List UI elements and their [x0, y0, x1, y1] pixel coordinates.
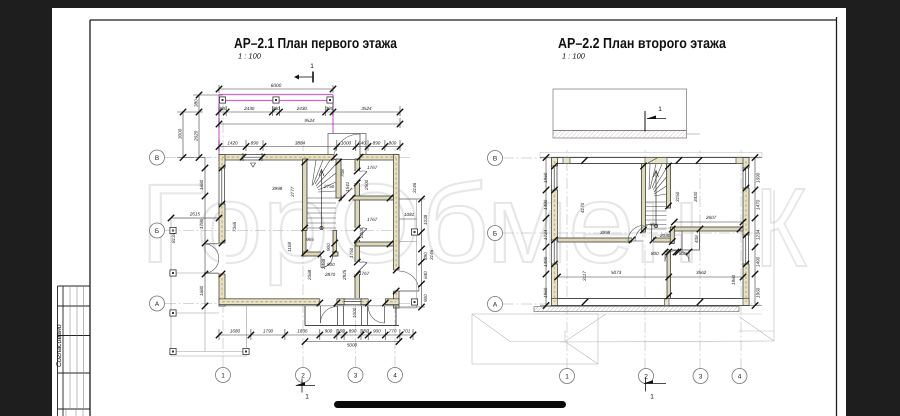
svg-text:1790: 1790	[199, 218, 204, 229]
svg-text:АР–2.2 План второго этажа: АР–2.2 План второго этажа	[558, 36, 727, 52]
svg-text:1836: 1836	[297, 329, 308, 334]
svg-text:1750: 1750	[349, 247, 354, 258]
svg-text:900: 900	[373, 329, 381, 334]
svg-text:890: 890	[251, 141, 259, 146]
svg-text:3117: 3117	[582, 271, 587, 281]
svg-text:2607: 2607	[705, 215, 717, 220]
svg-text:1000: 1000	[352, 307, 357, 318]
svg-text:3998: 3998	[272, 186, 283, 191]
svg-text:640: 640	[423, 271, 428, 279]
svg-text:В: В	[493, 156, 497, 163]
svg-text:1960: 1960	[543, 172, 548, 183]
svg-text:1420: 1420	[227, 141, 238, 146]
svg-text:1490: 1490	[543, 199, 548, 210]
svg-text:3524: 3524	[361, 106, 372, 111]
svg-text:1038: 1038	[423, 214, 428, 225]
svg-text:380: 380	[272, 106, 280, 111]
svg-text:900: 900	[326, 243, 331, 251]
svg-text:380: 380	[219, 106, 227, 111]
svg-text:1767: 1767	[359, 271, 370, 276]
svg-text:6000: 6000	[271, 83, 282, 89]
svg-text:1490: 1490	[756, 256, 761, 267]
svg-text:380: 380	[194, 99, 199, 107]
svg-text:3777: 3777	[290, 186, 295, 197]
svg-text:800: 800	[651, 251, 659, 256]
svg-text:380: 380	[325, 106, 333, 111]
svg-text:890: 890	[349, 329, 357, 334]
svg-text:1470: 1470	[756, 199, 761, 210]
svg-text:АР–2.1 План первого этажа: АР–2.1 План первого этажа	[234, 36, 398, 52]
svg-text:1767: 1767	[367, 165, 378, 170]
svg-text:2430.: 2430.	[296, 106, 309, 111]
svg-text:2500: 2500	[364, 179, 369, 191]
svg-text:380: 380	[361, 329, 369, 334]
svg-text:1960: 1960	[731, 274, 736, 285]
svg-text:1680: 1680	[199, 179, 204, 190]
svg-text:1790: 1790	[263, 329, 274, 334]
svg-text:2030: 2030	[659, 233, 671, 238]
svg-text:890: 890	[423, 252, 428, 260]
svg-text:3: 3	[699, 374, 703, 381]
svg-text:Б: Б	[493, 231, 497, 238]
svg-text:3: 3	[354, 373, 358, 380]
svg-text:1: 1	[565, 374, 569, 381]
svg-text:900: 900	[423, 294, 428, 302]
svg-text:3146: 3146	[412, 182, 417, 193]
svg-text:1: 1	[650, 394, 654, 401]
svg-text:2488: 2488	[321, 258, 326, 270]
svg-text:1108: 1108	[287, 242, 292, 252]
svg-text:3562: 3562	[696, 270, 707, 275]
svg-text:2430: 2430	[243, 106, 255, 111]
svg-text:1680: 1680	[199, 285, 204, 296]
svg-text:3998: 3998	[600, 230, 611, 235]
svg-text:8134: 8134	[171, 232, 176, 243]
svg-text:3430: 3430	[693, 191, 698, 202]
svg-text:1 : 100: 1 : 100	[238, 52, 262, 61]
svg-text:1734: 1734	[543, 229, 548, 240]
svg-text:380: 380	[337, 329, 345, 334]
svg-text:1680: 1680	[230, 329, 241, 334]
svg-text:1490: 1490	[543, 256, 548, 267]
svg-text:1767: 1767	[367, 217, 378, 222]
svg-text:Согласовано: Согласовано	[56, 324, 63, 367]
svg-text:1: 1	[221, 373, 225, 380]
svg-text:770: 770	[389, 329, 397, 334]
svg-text:1000: 1000	[341, 141, 352, 146]
svg-text:1541: 1541	[345, 181, 350, 192]
svg-text:708: 708	[340, 169, 345, 177]
svg-text:965: 965	[306, 237, 314, 242]
svg-text:1960: 1960	[756, 287, 761, 298]
svg-text:1690: 1690	[756, 172, 761, 183]
svg-text:Б: Б	[155, 228, 159, 235]
svg-text:1: 1	[310, 63, 314, 70]
svg-text:3884: 3884	[295, 141, 306, 146]
svg-text:5073: 5073	[611, 270, 622, 275]
svg-text:3000: 3000	[178, 128, 183, 139]
svg-text:2750: 2750	[323, 184, 335, 189]
svg-text:К: К	[755, 165, 807, 290]
svg-text:640: 640	[358, 141, 366, 146]
svg-text:2: 2	[644, 374, 648, 381]
svg-text:4: 4	[393, 373, 397, 380]
svg-text:800: 800	[327, 262, 335, 267]
svg-text:7365: 7365	[232, 221, 237, 232]
svg-text:9524: 9524	[304, 118, 315, 123]
svg-text:4170: 4170	[580, 202, 585, 213]
svg-text:800: 800	[389, 141, 397, 146]
svg-text:965: 965	[650, 222, 658, 227]
svg-text:438: 438	[694, 235, 699, 243]
svg-text:1234: 1234	[756, 229, 761, 240]
svg-text:3150: 3150	[675, 191, 680, 202]
svg-text:2368: 2368	[307, 269, 312, 281]
svg-text:2620: 2620	[194, 130, 199, 142]
svg-text:А: А	[493, 302, 498, 309]
svg-text:1 : 100: 1 : 100	[562, 52, 586, 61]
svg-text:1: 1	[305, 394, 309, 401]
svg-text:4: 4	[738, 374, 742, 381]
svg-text:701: 701	[403, 329, 411, 334]
svg-text:В: В	[155, 155, 159, 162]
svg-text:3146: 3146	[429, 249, 434, 260]
svg-text:1081: 1081	[404, 212, 415, 217]
svg-text:А: А	[155, 301, 160, 308]
svg-text:1960: 1960	[543, 287, 548, 298]
svg-text:5000: 5000	[347, 343, 358, 348]
svg-text:2870: 2870	[324, 272, 336, 277]
svg-text:2: 2	[301, 373, 305, 380]
svg-text:2925: 2925	[342, 269, 347, 281]
svg-text:1: 1	[658, 106, 662, 113]
svg-text:900: 900	[325, 329, 333, 334]
svg-text:890: 890	[373, 141, 381, 146]
svg-text:2615: 2615	[189, 212, 201, 217]
